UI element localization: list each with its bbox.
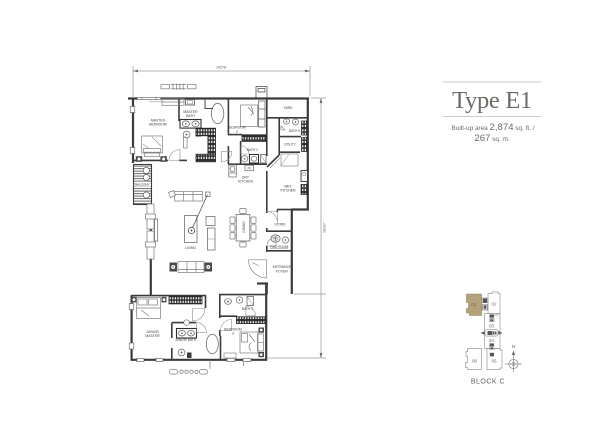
svg-text:BATH 5: BATH 5 bbox=[289, 129, 300, 133]
svg-text:Type E1: Type E1 bbox=[452, 87, 532, 114]
svg-text:06: 06 bbox=[472, 359, 478, 364]
svg-text:STORE: STORE bbox=[275, 223, 286, 227]
svg-text:16237: 16237 bbox=[323, 223, 327, 233]
svg-text:Built-up area 2,874 sq. ft. /: Built-up area 2,874 sq. ft. / bbox=[452, 122, 535, 133]
svg-text:BATH 2: BATH 2 bbox=[247, 148, 258, 152]
svg-text:3: 3 bbox=[232, 332, 234, 336]
svg-text:UTILITY: UTILITY bbox=[284, 143, 297, 147]
svg-text:FOYER: FOYER bbox=[276, 269, 288, 273]
svg-text:DINING: DINING bbox=[242, 221, 246, 233]
svg-text:02: 02 bbox=[491, 302, 497, 307]
svg-text:01: 01 bbox=[471, 302, 477, 307]
svg-text:BLOCK C: BLOCK C bbox=[471, 379, 505, 386]
svg-text:YARD: YARD bbox=[283, 106, 293, 110]
svg-text:(R): (R) bbox=[247, 166, 251, 170]
svg-text:KITCHEN: KITCHEN bbox=[281, 189, 296, 193]
svg-text:2: 2 bbox=[236, 130, 238, 134]
svg-text:14278: 14278 bbox=[216, 66, 226, 70]
svg-text:BALCONY: BALCONY bbox=[135, 182, 149, 186]
svg-text:JUNIOR BATH: JUNIOR BATH bbox=[175, 338, 197, 342]
svg-text:03: 03 bbox=[489, 324, 495, 329]
svg-text:BEDROOM: BEDROOM bbox=[149, 123, 167, 127]
svg-text:KITCHEN: KITCHEN bbox=[238, 180, 253, 184]
svg-text:267 sq. m.: 267 sq. m. bbox=[474, 133, 509, 144]
svg-text:BATH: BATH bbox=[186, 114, 195, 118]
svg-text:MASTER: MASTER bbox=[145, 334, 160, 338]
svg-text:LIVING: LIVING bbox=[185, 246, 196, 250]
svg-text:3A: 3A bbox=[489, 338, 496, 343]
svg-text:05: 05 bbox=[491, 359, 497, 364]
svg-text:BATH 3: BATH 3 bbox=[242, 307, 253, 311]
svg-text:N: N bbox=[512, 344, 515, 349]
